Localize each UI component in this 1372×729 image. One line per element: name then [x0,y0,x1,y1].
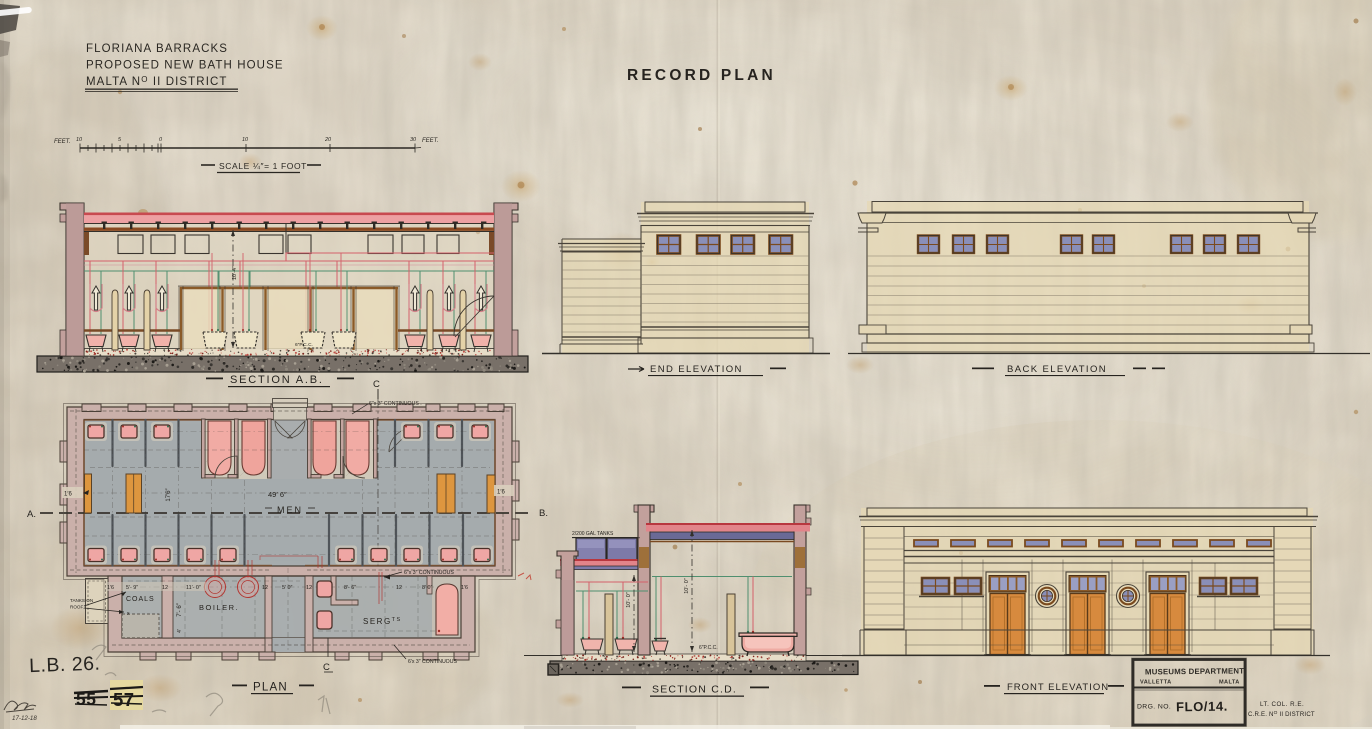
svg-text:1′6: 1′6 [461,585,468,591]
svg-text:2/200 GAL TANKS: 2/200 GAL TANKS [572,531,614,537]
svg-text:17-12-18: 17-12-18 [12,715,37,722]
svg-text:DRG. NO.: DRG. NO. [1137,704,1171,711]
svg-text:END ELEVATION: END ELEVATION [650,364,743,375]
svg-text:FRONT ELEVATION: FRONT ELEVATION [1007,682,1109,693]
svg-text:TANKS ON: TANKS ON [70,598,93,603]
svg-text:B.: B. [539,508,548,519]
svg-text:10: 10 [76,137,83,143]
svg-text:C: C [323,662,330,673]
svg-text:L.B. 26.: L.B. 26. [29,653,101,677]
svg-text:C.R.E. NO II DISTRICT: C.R.E. NO II DISTRICT [1248,710,1315,718]
svg-text:SECTION A.B.: SECTION A.B. [230,374,324,386]
svg-text:12: 12 [262,585,268,591]
svg-text:10'-4″: 10'-4″ [232,266,238,280]
svg-text:MALTA: MALTA [1219,680,1240,686]
svg-text:COALS: COALS [126,596,155,603]
svg-text:PLAN: PLAN [253,682,288,694]
svg-text:VALLETTA: VALLETTA [1140,680,1172,686]
svg-text:ROOF.: ROOF. [70,605,84,610]
svg-text:7′- 6″: 7′- 6″ [177,602,183,616]
svg-text:5′ 0″: 5′ 0″ [282,585,293,591]
svg-text:6″x 3″ CONTINUOUS: 6″x 3″ CONTINUOUS [404,570,454,576]
svg-text:8′ 0″: 8′ 0″ [422,585,433,591]
svg-text:10′- 0″: 10′- 0″ [684,578,690,594]
svg-text:12: 12 [306,585,312,591]
svg-text:RECORD PLAN: RECORD PLAN [627,67,776,84]
svg-text:10′- 0″: 10′- 0″ [626,592,632,608]
svg-text:6′x 3″ CONTINUOUS: 6′x 3″ CONTINUOUS [408,659,457,665]
svg-text:1′6: 1′6 [497,490,505,496]
svg-text:BACK ELEVATION: BACK ELEVATION [1007,364,1107,375]
svg-text:20: 20 [324,137,332,143]
svg-text:49′ 6″: 49′ 6″ [268,490,287,499]
svg-text:BOILER.: BOILER. [199,603,239,612]
svg-text:MUSEUMS DEPARTMENT: MUSEUMS DEPARTMENT [1145,666,1244,676]
svg-text:30: 30 [410,137,417,143]
svg-text:MALTA NO II DISTRICT: MALTA NO II DISTRICT [86,75,228,88]
svg-text:11′- 0″: 11′- 0″ [186,585,201,591]
svg-text:5′- 9″: 5′- 9″ [126,585,138,591]
svg-text:FLORIANA BARRACKS: FLORIANA BARRACKS [86,43,228,55]
svg-text:6″x 3″ CONTINUOUS .: 6″x 3″ CONTINUOUS . [369,401,422,407]
svg-text:1′6: 1′6 [107,585,114,591]
svg-text:FLO/14.: FLO/14. [1176,699,1228,715]
svg-text:FEET.: FEET. [54,139,71,145]
svg-text:8′- 6″: 8′- 6″ [344,585,356,591]
svg-text:6″P.C.C.: 6″P.C.C. [699,645,718,651]
svg-text:A.: A. [27,509,36,520]
svg-text:SECTION C.D.: SECTION C.D. [652,684,737,696]
svg-text:PROPOSED NEW BATH HOUSE: PROPOSED NEW BATH HOUSE [86,60,284,72]
svg-text:4′: 4′ [177,629,183,633]
svg-text:SCALE ¼″= 1 FOOT: SCALE ¼″= 1 FOOT [219,161,307,171]
svg-text:57: 57 [113,689,135,710]
svg-text:1′6: 1′6 [64,492,72,498]
svg-text:LT. COL. R.E.: LT. COL. R.E. [1260,701,1304,708]
svg-text:FEET.: FEET. [422,138,439,144]
svg-text:6″P.C.C.: 6″P.C.C. [295,342,313,348]
svg-text:17′6″: 17′6″ [166,487,172,501]
svg-text:C: C [373,379,380,390]
svg-text:10: 10 [242,137,249,143]
svg-text:12: 12 [162,585,168,591]
svg-text:12: 12 [396,585,402,591]
svg-text:MEN: MEN [277,505,303,515]
